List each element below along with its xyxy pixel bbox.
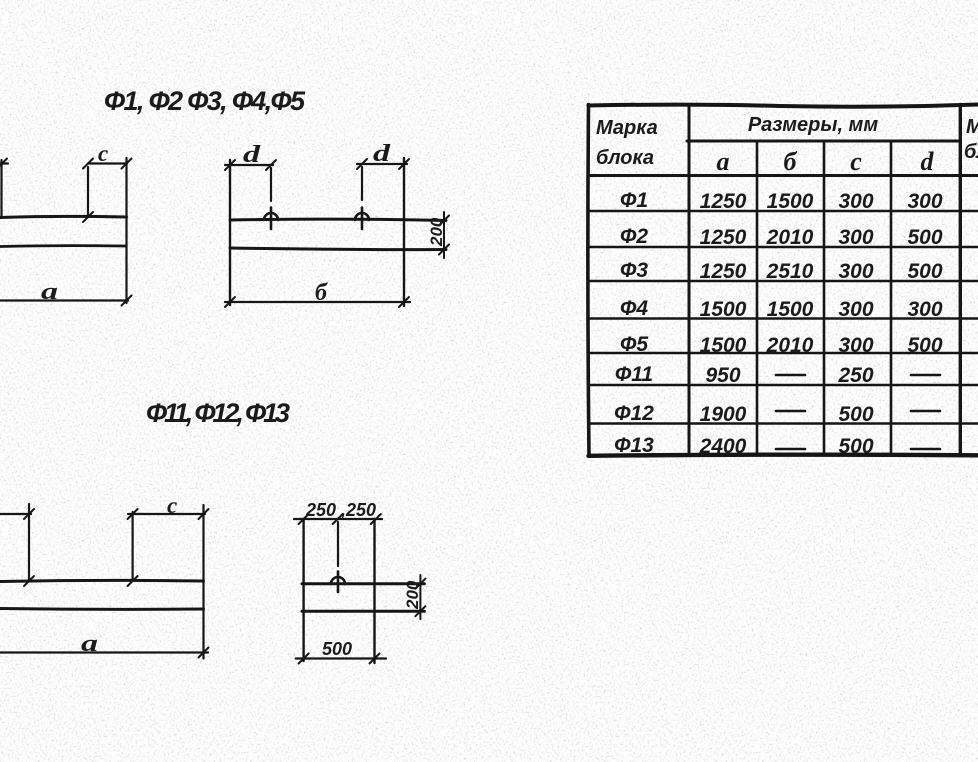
svg-text:200: 200: [403, 580, 422, 610]
svg-text:a: a: [717, 147, 730, 176]
svg-text:300: 300: [838, 190, 873, 213]
svg-text:1900: 1900: [700, 403, 747, 426]
svg-text:2010: 2010: [766, 226, 814, 249]
svg-text:a: a: [41, 279, 58, 305]
svg-text:500: 500: [907, 334, 942, 357]
svg-text:1250: 1250: [700, 190, 747, 213]
svg-text:Ф12: Ф12: [614, 402, 654, 425]
svg-text:1500: 1500: [700, 298, 747, 321]
svg-text:c: c: [167, 493, 177, 518]
svg-text:300: 300: [838, 334, 873, 357]
svg-text:Ф13: Ф13: [614, 434, 654, 457]
svg-text:Марка: Марка: [596, 117, 658, 139]
svg-text:d: d: [921, 147, 935, 176]
svg-text:500: 500: [322, 639, 352, 659]
svg-text:Масса: Масса: [966, 116, 978, 138]
svg-text:c: c: [98, 141, 108, 166]
svg-text:Ф3: Ф3: [620, 259, 648, 282]
svg-text:500: 500: [838, 435, 873, 458]
svg-text:500: 500: [907, 260, 942, 283]
svg-text:Ф11: Ф11: [615, 363, 653, 386]
svg-text:б: б: [784, 147, 798, 176]
svg-text:1500: 1500: [767, 298, 814, 321]
svg-text:Ф1: Ф1: [620, 189, 648, 212]
svg-text:250: 250: [837, 364, 873, 387]
svg-text:Размеры, мм: Размеры, мм: [748, 114, 879, 136]
svg-text:2510: 2510: [766, 260, 814, 283]
svg-text:500: 500: [907, 226, 942, 249]
svg-text:2010: 2010: [766, 334, 814, 357]
svg-text:300: 300: [907, 298, 942, 321]
svg-text:Ф11, Ф12, Ф13: Ф11, Ф12, Ф13: [146, 398, 290, 428]
svg-text:1500: 1500: [700, 334, 747, 357]
svg-text:300: 300: [907, 190, 942, 213]
svg-text:d: d: [243, 142, 261, 168]
svg-text:200: 200: [427, 217, 446, 247]
svg-text:б: б: [315, 280, 328, 306]
svg-text:c: c: [850, 147, 862, 176]
svg-text:300: 300: [838, 226, 873, 249]
svg-text:a: a: [81, 631, 98, 657]
svg-text:2400: 2400: [699, 435, 747, 458]
svg-text:300: 300: [838, 298, 873, 321]
svg-text:500: 500: [838, 403, 873, 426]
svg-text:Ф1, Ф2 Ф3, Ф4,Ф5: Ф1, Ф2 Ф3, Ф4,Ф5: [104, 86, 306, 116]
svg-text:блока: блока: [964, 141, 978, 163]
svg-text:Ф5: Ф5: [620, 333, 648, 356]
svg-text:1250: 1250: [700, 226, 747, 249]
svg-text:Ф4: Ф4: [620, 297, 648, 320]
svg-text:блока: блока: [596, 147, 654, 169]
svg-text:Ф2: Ф2: [620, 225, 648, 248]
svg-text:300: 300: [838, 260, 873, 283]
svg-text:1500: 1500: [767, 190, 814, 213]
svg-text:950: 950: [705, 364, 740, 387]
svg-text:1250: 1250: [700, 260, 747, 283]
svg-text:d: d: [373, 141, 391, 167]
